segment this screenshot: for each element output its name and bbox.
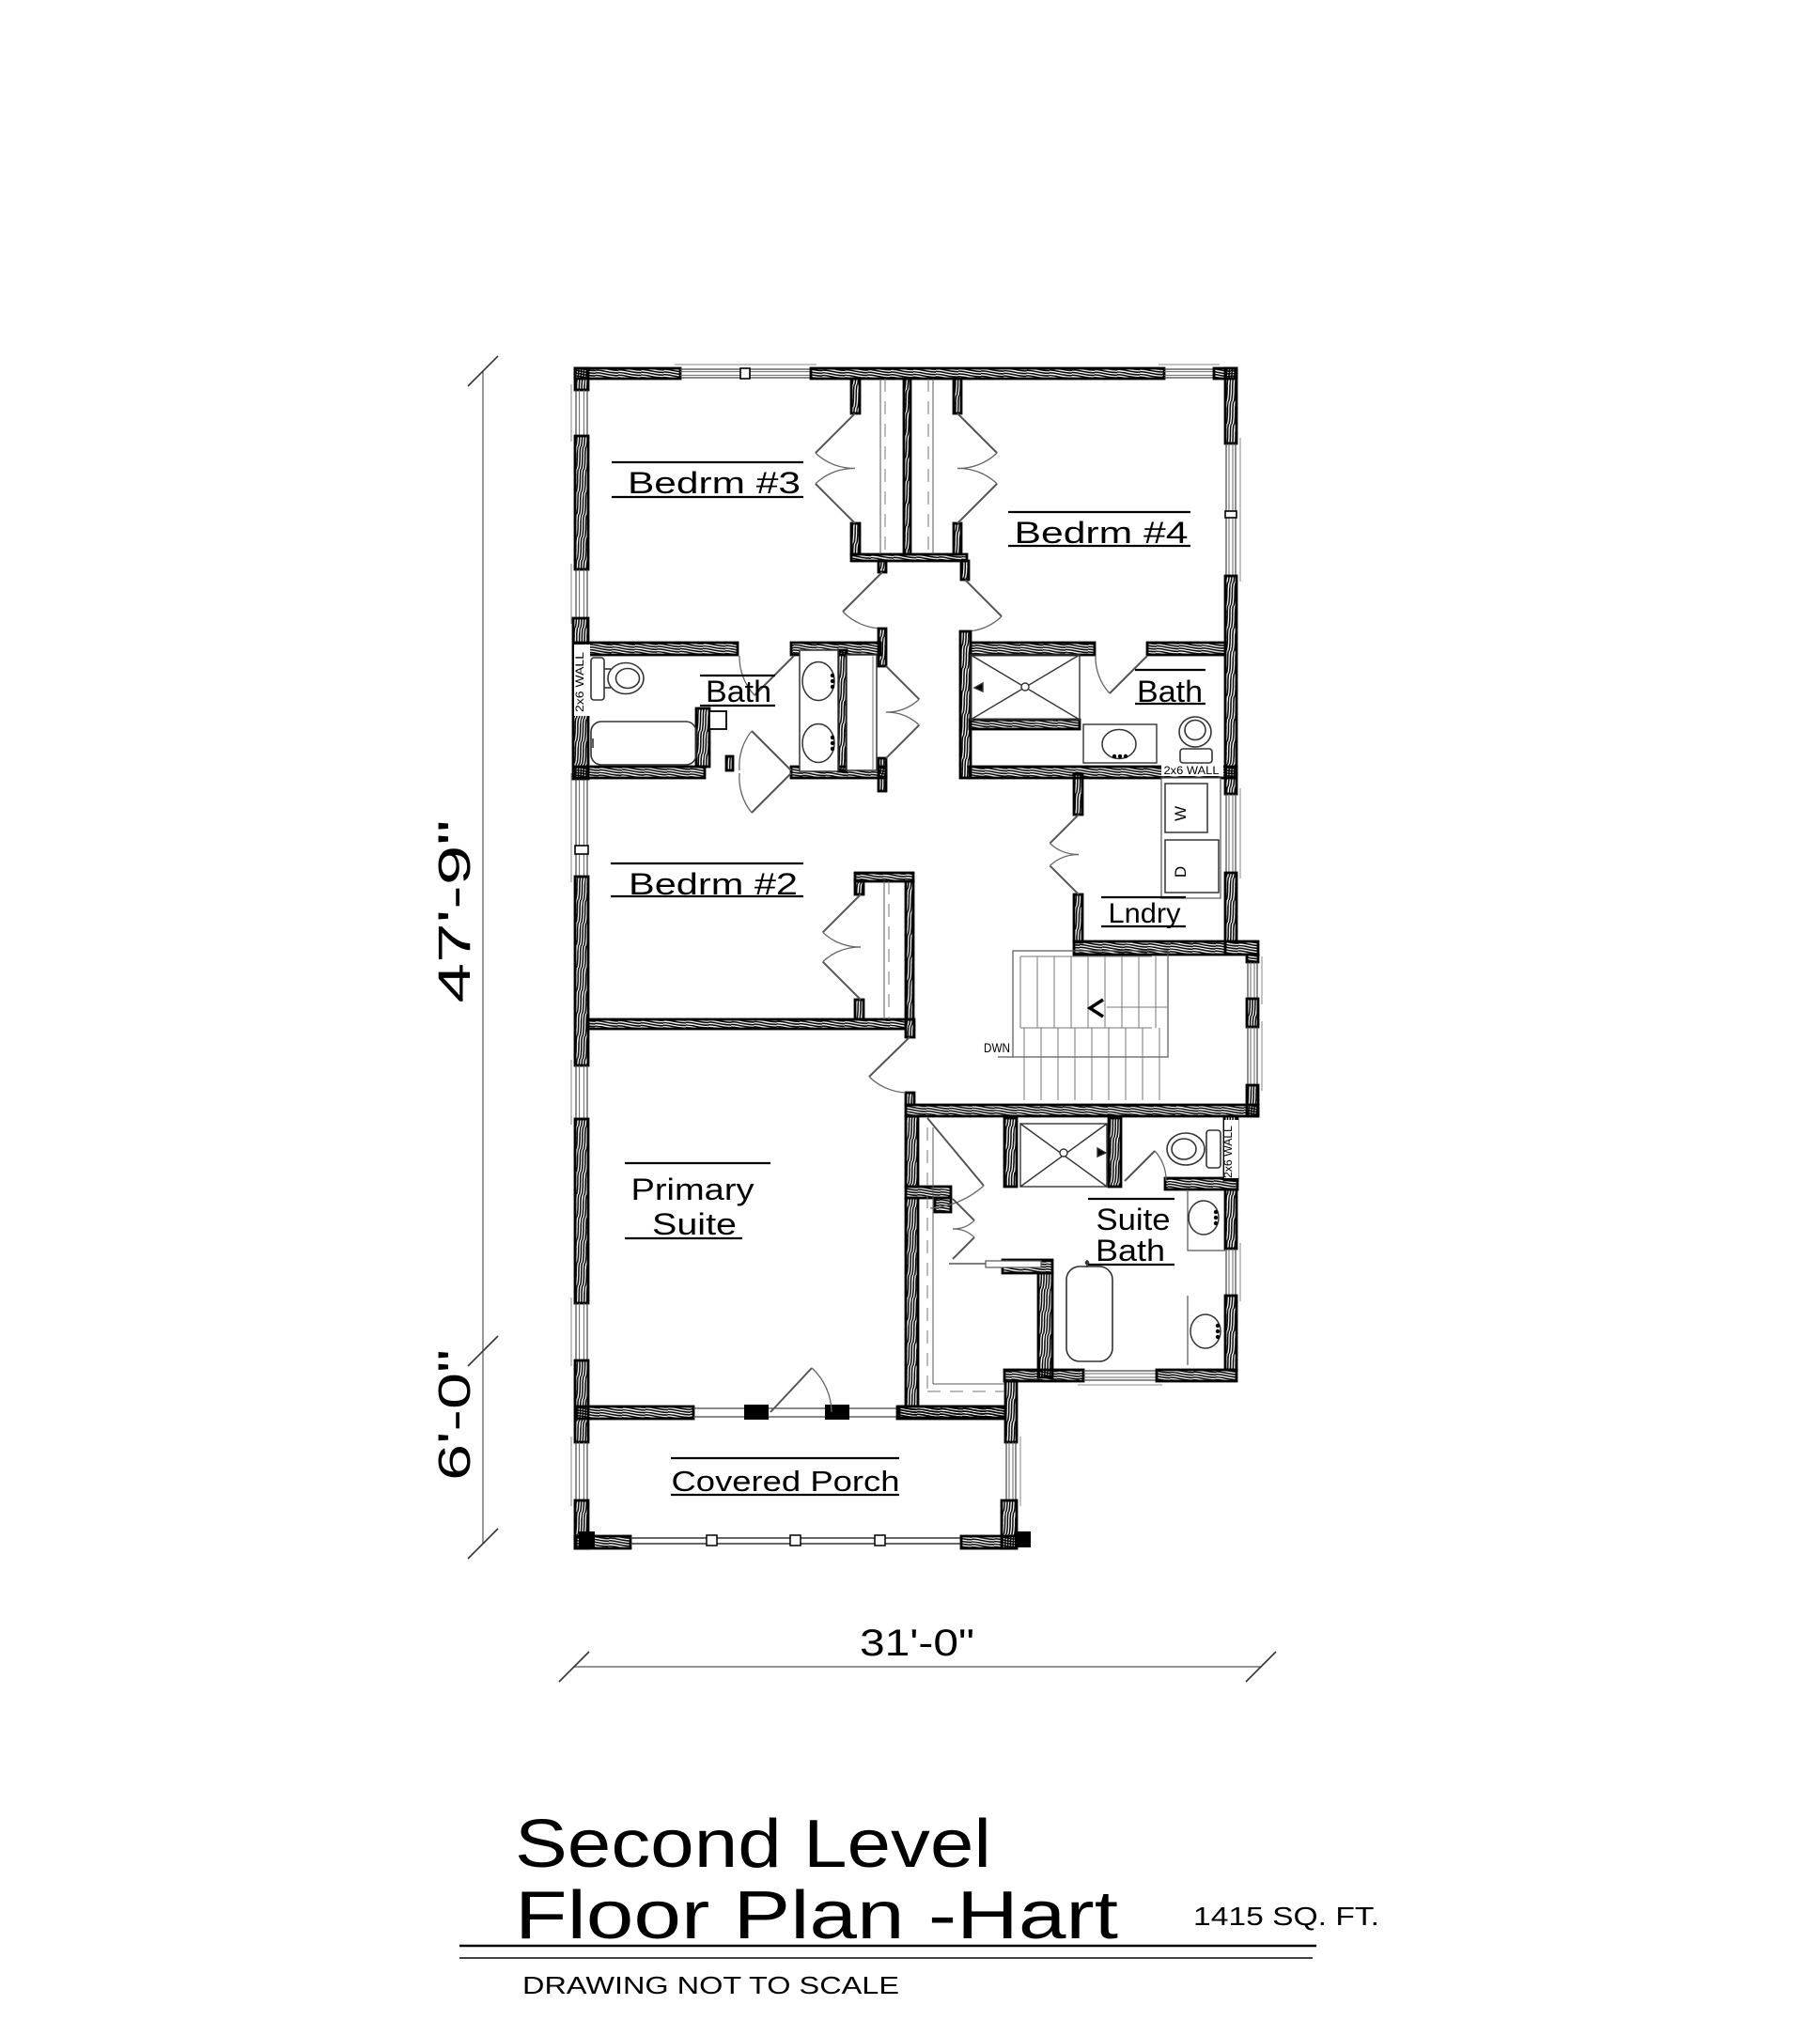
svg-text:Bath: Bath [1096,1234,1165,1267]
svg-text:Bedrm #3: Bedrm #3 [628,466,801,500]
svg-text:Bedrm #2: Bedrm #2 [629,867,798,901]
svg-text:DWN: DWN [984,1040,1010,1055]
svg-text:Primary: Primary [631,1173,754,1206]
svg-text:Bath: Bath [1137,675,1203,708]
svg-text:6'-0": 6'-0" [430,1349,480,1481]
svg-text:Lndry: Lndry [1109,898,1181,929]
svg-text:DRAWING NOT TO SCALE: DRAWING NOT TO SCALE [522,1971,899,1999]
svg-text:31'-0": 31'-0" [860,1623,974,1664]
svg-text:2x6 WALL: 2x6 WALL [1164,764,1220,777]
svg-text:D: D [1172,866,1190,878]
svg-text:2x6 WALL: 2x6 WALL [573,652,586,712]
svg-text:Floor Plan -Hart: Floor Plan -Hart [515,1878,1118,1953]
svg-text:W: W [1172,806,1190,821]
svg-text:Suite: Suite [652,1207,737,1241]
svg-text:Suite: Suite [1097,1203,1171,1236]
svg-text:1415 SQ. FT.: 1415 SQ. FT. [1193,1902,1379,1931]
svg-text:Second Level: Second Level [515,1807,991,1882]
svg-text:2x6 WALL: 2x6 WALL [1221,1126,1235,1178]
svg-text:Bedrm #4: Bedrm #4 [1015,516,1189,550]
svg-text:Covered Porch: Covered Porch [672,1465,900,1498]
svg-text:47'-9": 47'-9" [430,820,480,1003]
svg-text:Bath: Bath [706,675,771,708]
